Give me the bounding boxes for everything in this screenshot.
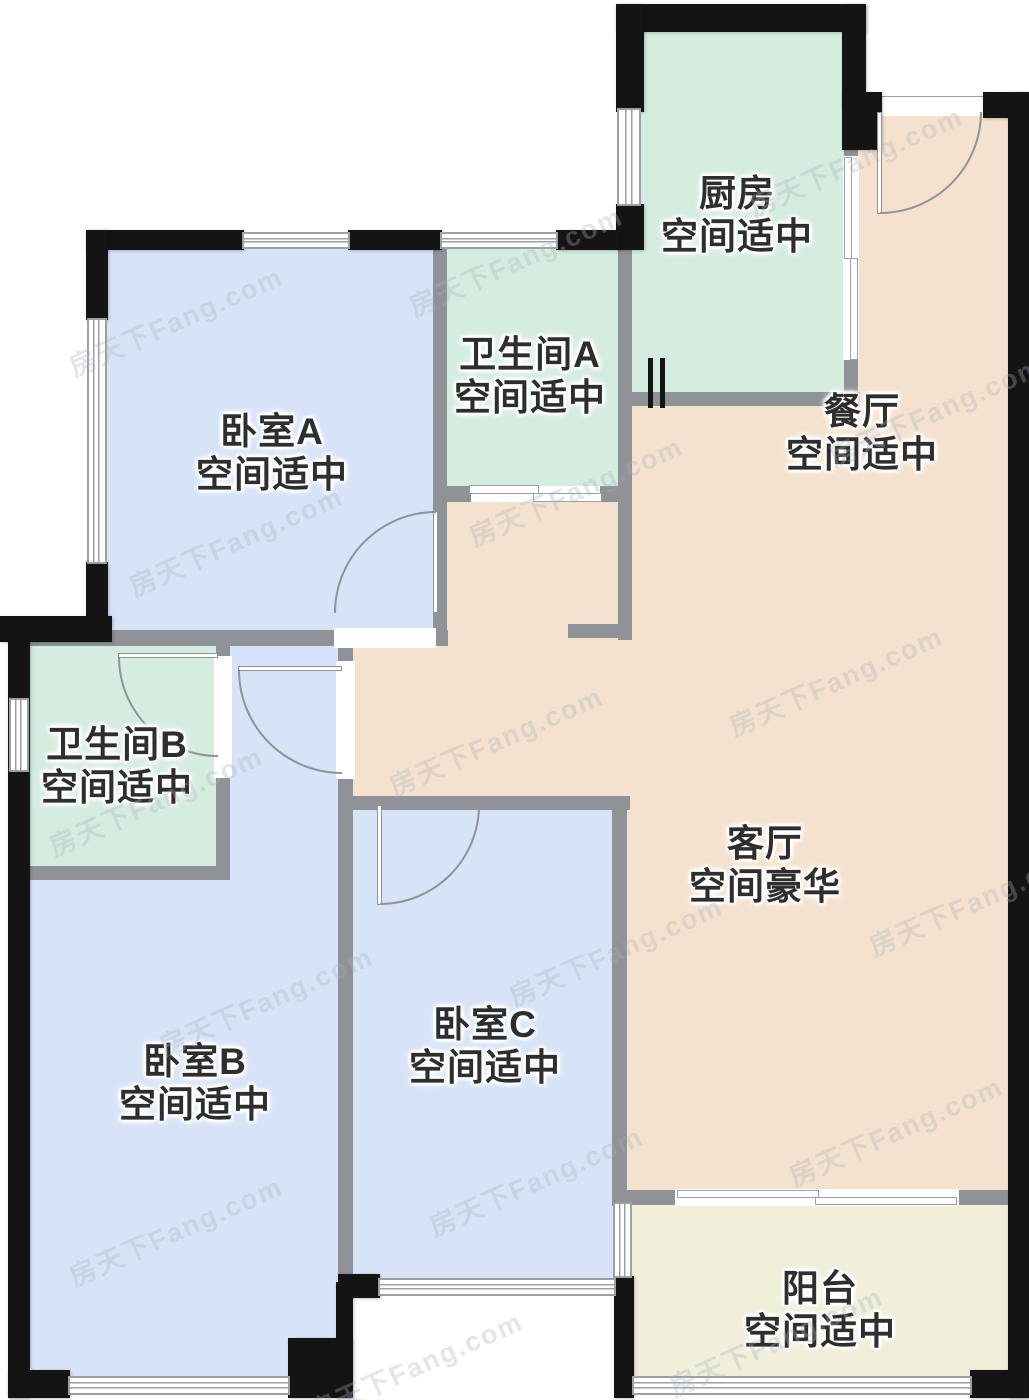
kitchen-sliding-panel-lower [850,258,858,360]
room-label-bathroom-a: 卫生间A 空间适中 [400,333,660,419]
bathroom-a-top-window [440,232,558,249]
room-label-bedroom-b: 卧室B 空间适中 [65,1040,325,1126]
room-size-note: 空间适中 [661,215,813,258]
room-name: 餐厅 [824,390,900,433]
room-name: 卫生间A [459,333,601,376]
wall-bedroomC-bottom-left [338,1274,380,1298]
bedroom-b-floor [12,870,344,1385]
wall-bathroomA-kitchen [618,240,632,640]
room-size-note: 空间豪华 [689,865,841,908]
wall-bathroomA-bottom-right [598,486,632,502]
bedroom-a-left-window [87,318,107,564]
room-label-bathroom-b: 卫生间B 空间适中 [0,723,247,809]
room-name: 卧室C [433,1003,537,1046]
bedroom-a-top-window [242,232,350,249]
room-name: 厨房 [699,172,775,215]
wall-balcony-left [614,1276,634,1398]
wall-bedroomB-right-lower [336,1282,353,1398]
living-floor [626,400,1012,1195]
bedroom-a-door-opening [334,628,436,648]
bedroom-b-bottom-window [68,1376,290,1395]
room-label-kitchen: 厨房 空间适中 [607,172,867,258]
wall-bedroomB-bottom-left [8,1370,70,1398]
room-label-balcony: 阳台 空间适中 [690,1267,950,1353]
wall-bedroomA-top-left [86,230,244,250]
room-size-note: 空间适中 [196,453,348,496]
wall-bedroomA-top-mid [348,230,442,250]
room-label-bedroom-a: 卧室A 空间适中 [142,410,402,496]
wall-entry-stub [842,92,882,150]
bedroom-c-right-window [613,1202,632,1278]
wall-balcony-bottom-right [970,1370,1028,1398]
bathroom-a-sliding-panel-right [533,493,602,502]
room-size-note: 空间适中 [409,1046,561,1089]
room-size-note: 空间适中 [454,376,606,419]
floorplan-canvas: 厨房 空间适中 卫生间A 空间适中 餐厅 空间适中 卧室A 空间适中 卫生间B … [0,0,1029,1400]
room-name: 客厅 [727,822,803,865]
room-size-note: 空间适中 [744,1310,896,1353]
wall-kitchen-left-upper [616,4,644,112]
wall-kitchen-top [616,4,866,32]
hallway-floor [348,638,630,803]
wall-right-exterior [1008,92,1029,1398]
room-label-living: 客厅 空间豪华 [635,822,895,908]
room-name: 卧室B [143,1040,247,1083]
corridor-floor [445,495,630,645]
room-size-note: 空间适中 [786,433,938,476]
room-name: 阳台 [782,1267,858,1310]
bedroom-c-bottom-window [378,1278,616,1296]
room-size-note: 空间适中 [119,1083,271,1126]
room-label-bedroom-c: 卧室C 空间适中 [355,1003,615,1089]
pipe-riser-icon [660,358,665,408]
wall-bathroomA-bottom-left [433,486,473,502]
room-size-note: 空间适中 [41,766,193,809]
balcony-bottom-window [632,1376,972,1395]
bathroom-a-sliding-panel-left [469,485,539,494]
balcony-sliding-panel-left [677,1190,819,1198]
wall-bedroomA-left-upper [86,230,108,320]
wall-bedroomC-right [612,796,627,1206]
balcony-sliding-panel-right [815,1197,957,1205]
room-name: 卧室A [220,410,324,453]
wall-corridor-stub [568,624,632,638]
room-label-dining: 餐厅 空间适中 [732,390,992,476]
room-name: 卫生间B [46,723,188,766]
wall-bathroomB-bottom [12,866,230,880]
